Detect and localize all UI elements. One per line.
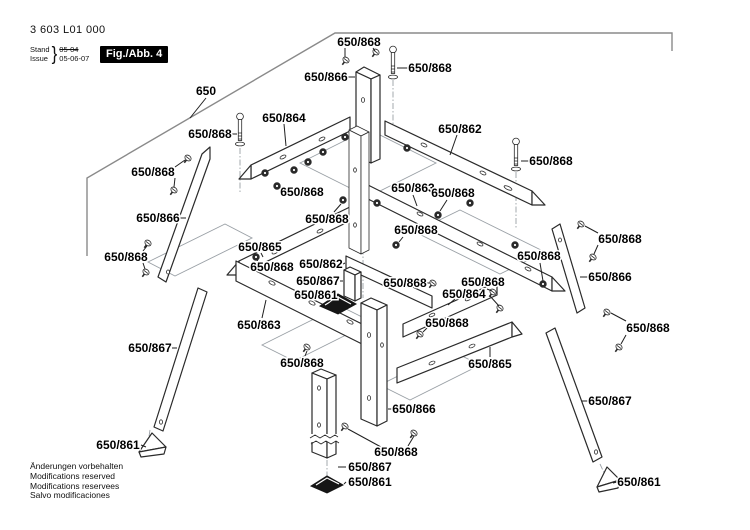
part-label: 650/868 [461,275,505,289]
leader-line [190,98,206,118]
leader-line [594,245,598,254]
leader-line [262,300,266,318]
part-label: 650/868 [431,186,475,200]
nut-icon [305,159,311,165]
part-label: 650/868 [188,127,232,141]
leader-line [490,296,499,306]
new-date: 05-06-07 [59,54,89,63]
post-650-866-center [361,298,387,426]
part-label: 650/868 [280,356,324,370]
leader-line [174,178,175,187]
post-650-866-middle [349,126,369,254]
part-label: 650/868 [425,316,469,330]
part-label: 650/868 [305,212,349,226]
part-label: 650/868 [517,249,561,263]
leg-650-867-bottom [310,369,339,458]
part-label: 650/868 [598,232,642,246]
brace-650-866-right [552,224,585,313]
nut-icon [467,200,473,206]
nut-icon [340,197,346,203]
part-label: 650/868 [394,223,438,237]
screw-icon [575,220,586,231]
screw-icon [182,154,193,165]
part-label: 650/868 [383,276,427,290]
leader-line [450,135,457,155]
part-label: 650/868 [337,35,381,49]
part-label: 650/866 [588,270,632,284]
part-label: 650/868 [131,165,175,179]
nut-icon [342,134,348,140]
screw-icon [140,268,151,279]
revision-block: Stand Issue } 05-04 05-06-07 [30,44,89,64]
nut-icon [393,242,399,248]
part-label: 650/864 [442,287,486,301]
part-label: 650/862 [299,257,343,271]
leader-line [399,237,403,242]
part-label: 650/868 [104,250,148,264]
part-label: 650/861 [96,438,140,452]
disclaimer-block: Änderungen vorbehalten Modifications res… [30,462,123,501]
screw-icon [613,343,624,354]
foot-650-861-bottom [311,476,343,493]
type-number: 3 603 L01 000 [30,24,106,36]
part-label: 650/868 [250,260,294,274]
part-label: 650/864 [262,111,306,125]
leader-line [440,200,447,211]
screw-icon [427,279,438,290]
leader-line [175,160,185,167]
nut-icon [404,145,410,151]
disclaimer-line-es: Salvo modificaciones [30,491,123,501]
nut-icon [274,183,280,189]
figure-number-badge: Fig./Abb. 4 [100,46,168,63]
nut-icon [435,212,441,218]
screw-icon [339,422,350,433]
screw-icon [587,253,598,264]
part-label: 650/862 [438,122,482,136]
part-label: 650/868 [408,61,452,75]
screw-icon [601,308,612,319]
old-date: 05-04 [59,45,89,54]
stand-label: Stand [30,45,50,54]
part-label: 650/868 [280,185,324,199]
part-label: 650/866 [392,402,436,416]
leader-line [621,335,626,344]
nut-icon [291,167,297,173]
part-label: 650/861 [294,288,338,302]
leader-line [343,263,345,264]
part-label: 650/868 [529,154,573,168]
screw-icon [142,239,153,250]
part-label: 650/867 [128,341,172,355]
screw-icon [340,56,351,67]
leg-650-867-stub [344,267,361,301]
screw-icon [168,186,179,197]
leader-line [344,482,346,484]
part-label: 650/863 [237,318,281,332]
leg-650-867-left [154,288,207,431]
part-label: 650/866 [304,70,348,84]
screw-icon [370,48,381,59]
leader-line [611,313,626,321]
leader-line [585,226,598,233]
nut-icon [374,200,380,206]
parts-diagram-sheet: 650650/868650/868650/866650/864650/86265… [0,0,750,530]
part-label: 650/867 [348,460,392,474]
part-label: 650/866 [136,211,180,225]
part-label: 650/861 [617,475,661,489]
nut-icon [540,281,546,287]
bolt-icon [511,138,520,171]
bolt-icon [388,46,397,79]
part-label: 650/867 [588,394,632,408]
part-label: 650/868 [626,321,670,335]
nut-icon [512,242,518,248]
leader-line [284,124,286,146]
nut-icon [262,170,268,176]
part-label: 650/867 [296,274,340,288]
exploded-view-diagram: 650650/868650/868650/866650/864650/86265… [0,0,750,530]
issue-label: Issue [30,54,50,63]
bolt-icon [235,113,244,146]
leader-line [413,195,417,206]
leader-line [334,204,341,212]
part-label: 650 [196,84,216,98]
part-label: 650/863 [391,181,435,195]
revision-brace: } [52,43,58,66]
nut-icon [320,149,326,155]
screw-icon [301,343,312,354]
part-label: 650/861 [348,475,392,489]
foot-650-861-left [139,433,166,457]
part-label: 650/865 [238,240,282,254]
part-label: 650/865 [468,357,512,371]
part-label: 650/868 [374,445,418,459]
